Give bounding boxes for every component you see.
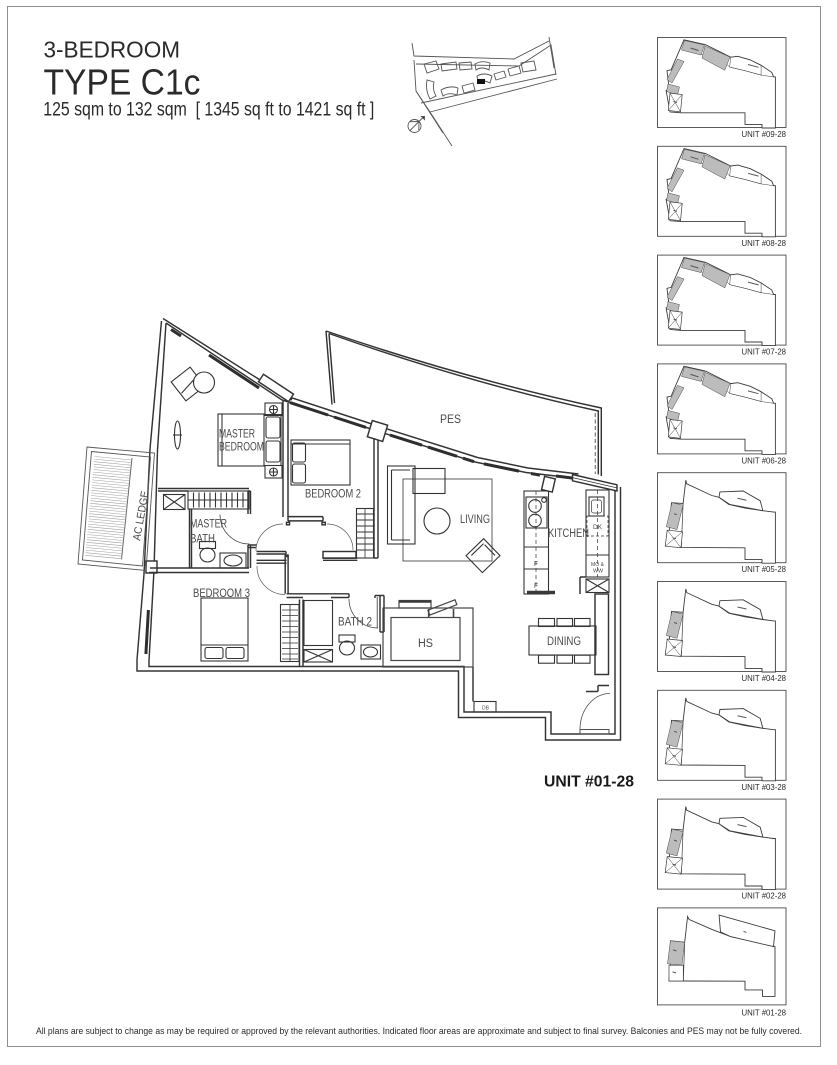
svg-text:MASTER: MASTER [219, 429, 255, 441]
svg-text:UNIT #09-28: UNIT #09-28 [742, 129, 787, 139]
svg-text:BATH: BATH [190, 534, 215, 546]
svg-text:BATH 2: BATH 2 [338, 617, 372, 629]
svg-text:DINING: DINING [547, 636, 581, 648]
svg-text:DB: DB [482, 706, 489, 712]
svg-text:3-BEDROOM: 3-BEDROOM [44, 37, 181, 63]
svg-text:UNIT #03-28: UNIT #03-28 [742, 782, 787, 792]
svg-text:F: F [534, 561, 538, 568]
svg-text:PES: PES [440, 414, 461, 426]
svg-text:WW: WW [593, 569, 604, 575]
svg-text:LIVING: LIVING [460, 514, 490, 526]
svg-text:UNIT #07-28: UNIT #07-28 [742, 347, 787, 357]
svg-text:KITCHEN: KITCHEN [548, 528, 589, 540]
svg-text:MO &: MO & [591, 562, 604, 568]
svg-text:UNIT #02-28: UNIT #02-28 [742, 891, 787, 901]
svg-text:All plans are subject to chang: All plans are subject to change as may b… [36, 1026, 802, 1037]
svg-text:UNIT #08-28: UNIT #08-28 [742, 238, 787, 248]
svg-text:F: F [534, 583, 538, 590]
svg-text:DK: DK [593, 525, 602, 531]
svg-text:UNIT #01-28: UNIT #01-28 [544, 774, 634, 791]
svg-text:BEDROOM 3: BEDROOM 3 [193, 588, 250, 600]
svg-text:UNIT #04-28: UNIT #04-28 [742, 673, 787, 683]
svg-text:UNIT #05-28: UNIT #05-28 [742, 564, 787, 574]
svg-text:BEDROOM: BEDROOM [219, 442, 264, 454]
svg-text:125 sqm to 132 sqm [ 1345 sq: 125 sqm to 132 sqm [ 1345 sq ft to 1421 … [43, 99, 374, 121]
svg-text:UNIT #06-28: UNIT #06-28 [742, 455, 787, 465]
svg-text:HS: HS [418, 638, 433, 650]
svg-text:TYPE C1c: TYPE C1c [44, 63, 201, 103]
svg-text:MASTER: MASTER [190, 519, 227, 531]
svg-text:BEDROOM 2: BEDROOM 2 [305, 489, 361, 501]
svg-text:UNIT #01-28: UNIT #01-28 [742, 1007, 787, 1017]
